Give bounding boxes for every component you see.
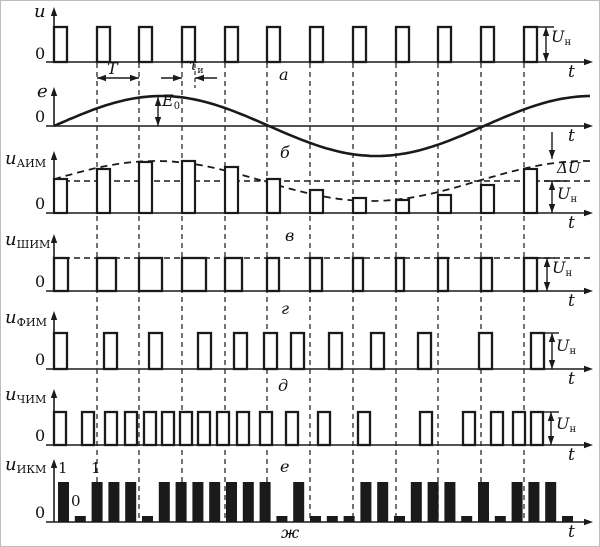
row-a	[46, 7, 593, 65]
row-b	[46, 87, 593, 156]
row-v	[46, 132, 593, 216]
waveform-canvas	[1, 1, 600, 547]
row-g	[46, 234, 593, 294]
gridlines	[97, 63, 524, 522]
row-d	[46, 311, 593, 372]
row-e	[46, 389, 593, 448]
row-zh	[46, 459, 593, 525]
pulse-modulation-diagram: ueuАИМuШИМuФИМuЧИМuИКМ0000000tttttttабвг…	[0, 0, 600, 547]
annotations	[97, 64, 217, 88]
